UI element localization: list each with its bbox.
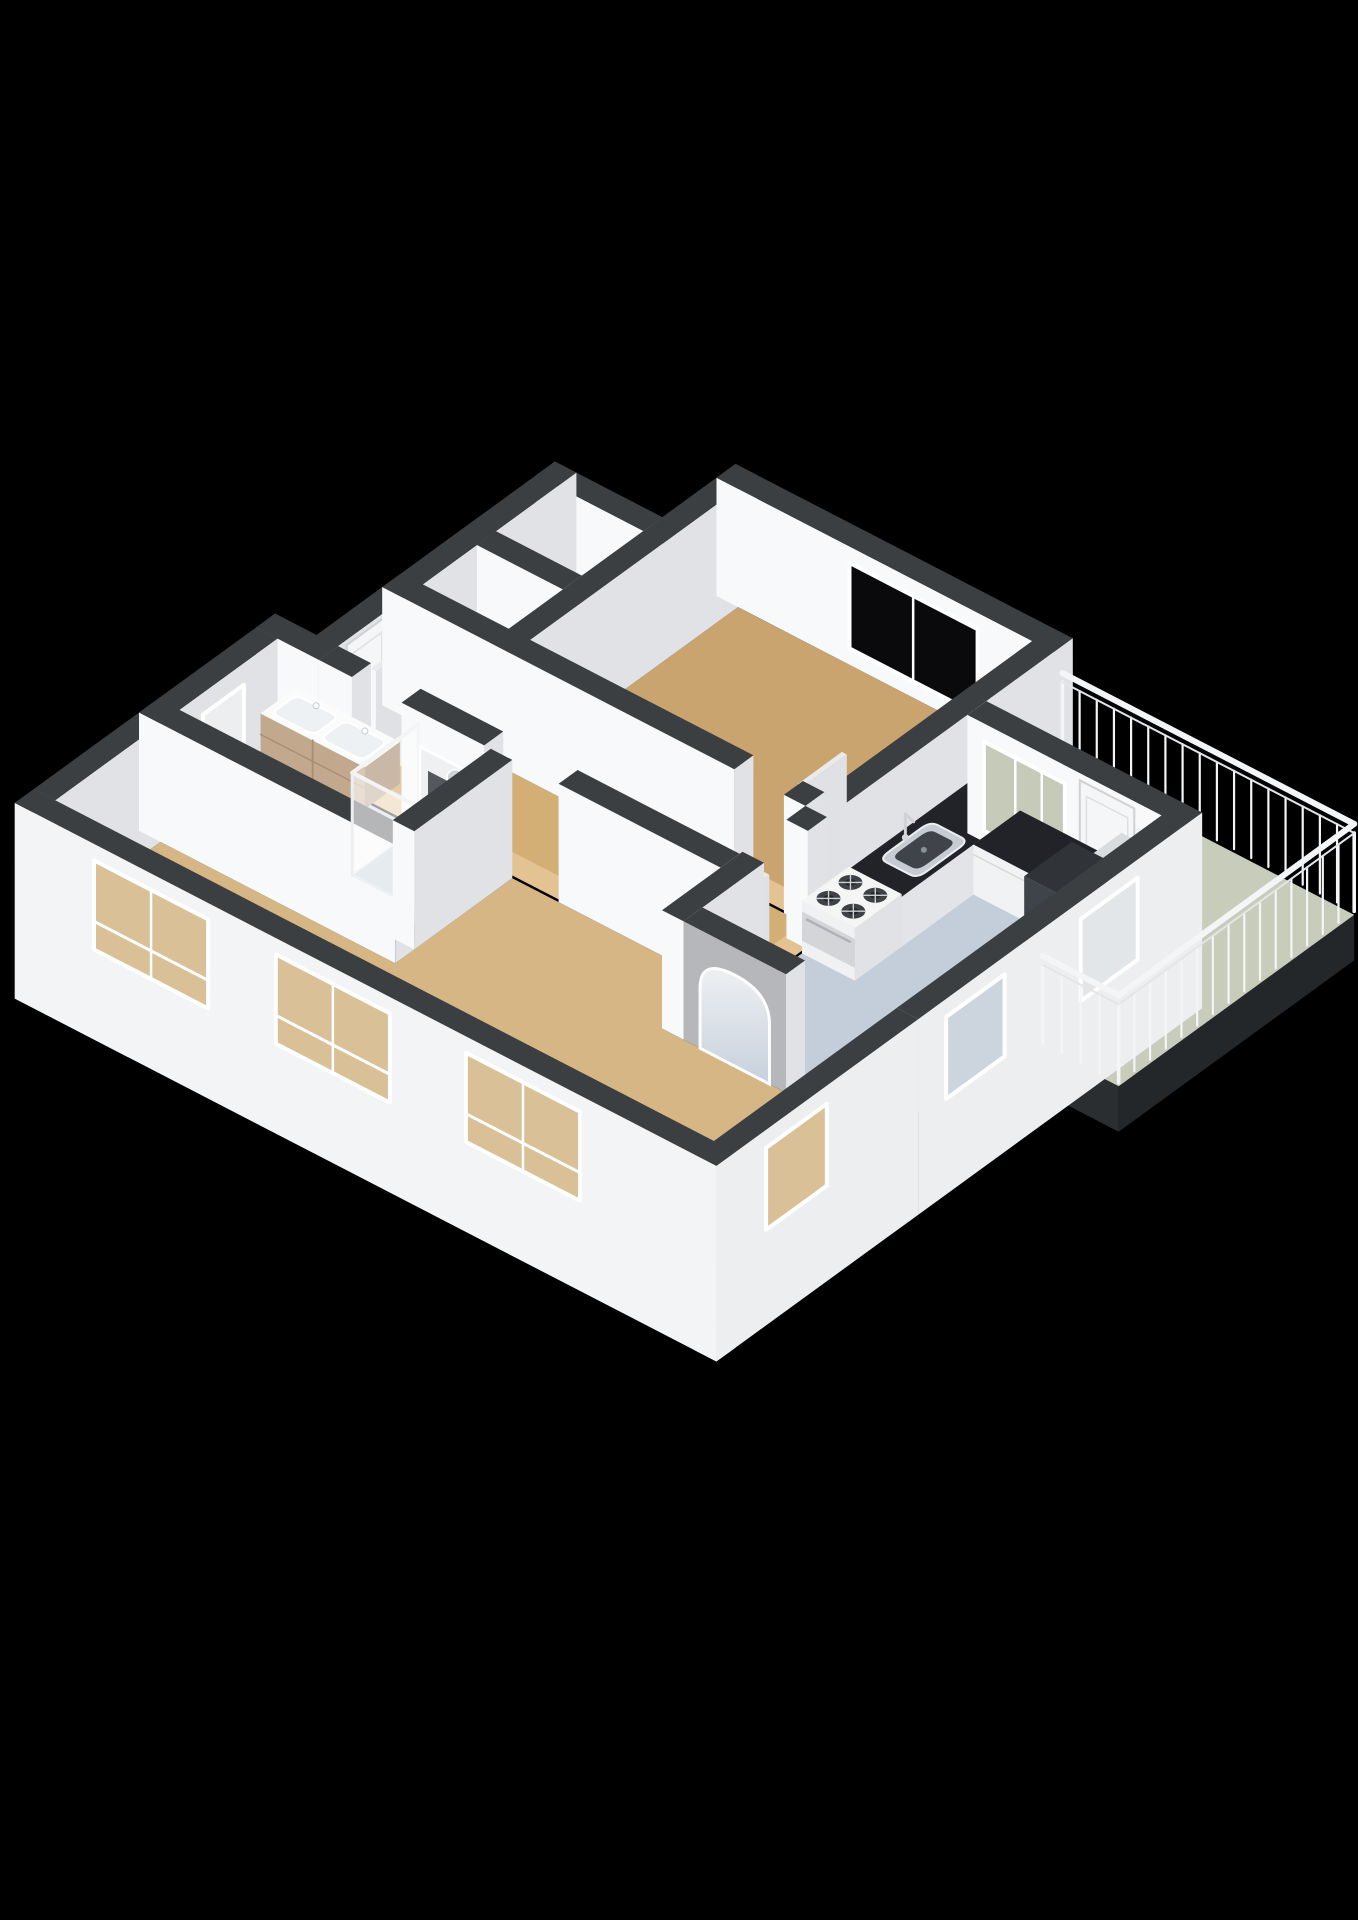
floorplan-stage [0,0,1358,1920]
floorplan-3d-render [0,0,1358,1920]
structure-layer [15,462,1355,1362]
